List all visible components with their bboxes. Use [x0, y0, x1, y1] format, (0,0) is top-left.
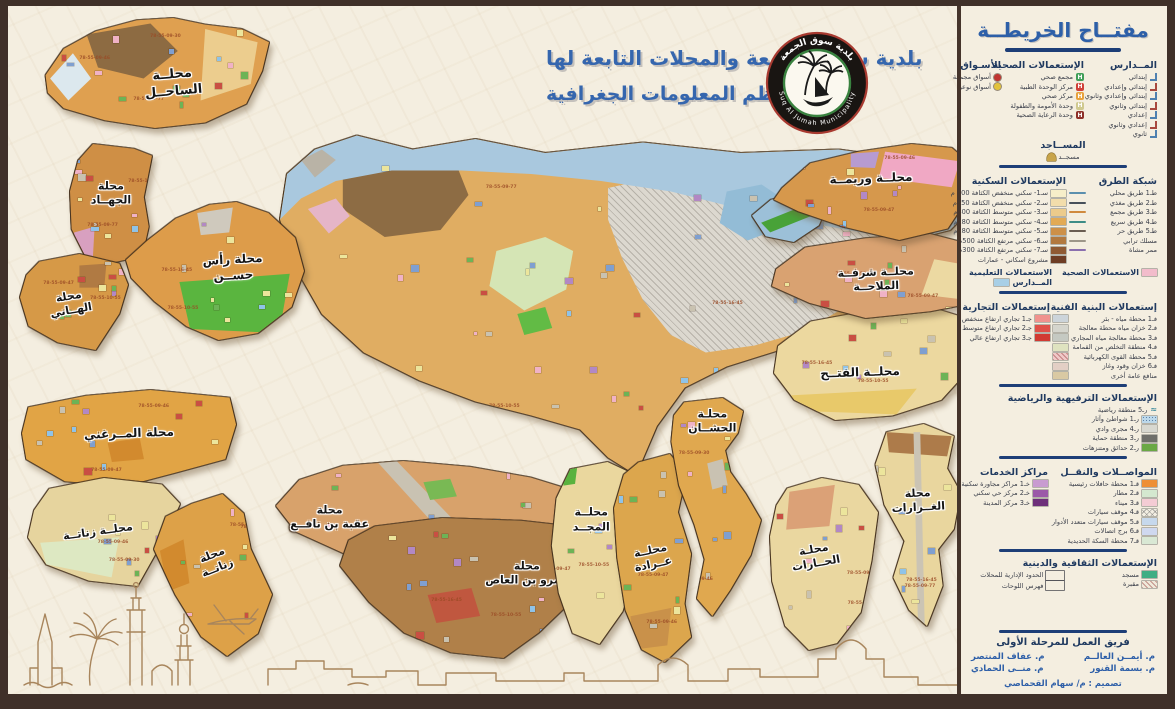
legend-item-label: إعدادي وثانوي	[1108, 121, 1147, 129]
facility-block	[169, 49, 174, 54]
facility-block	[688, 472, 693, 475]
facility-block	[624, 392, 629, 396]
legend-item: Hمجمع صحي	[1004, 73, 1084, 81]
legend-item-label: جـ1 تجاري ارتفاع منخفض	[962, 315, 1032, 323]
facility-block	[630, 497, 637, 502]
legend-item-label: سـ7- سكني مرتفع الكثافة 300م	[958, 246, 1048, 254]
section-title: إستعمالات البنية الفنية	[1053, 302, 1157, 313]
section-title: مراكز الخدمات	[964, 467, 1048, 478]
legend-item: فـ2 خزان مياه محطة معالجة	[1053, 324, 1157, 332]
color-swatch	[1051, 209, 1066, 216]
legend-item-label: طـ2 طريق مغذي	[1110, 199, 1157, 207]
district-shape: 78-55-09-4678-55-09-47	[774, 144, 976, 240]
legend-item-label: قـ4 موقف سيارات	[1088, 508, 1139, 516]
facility-block	[251, 537, 256, 543]
legend-row-schools-health-markets: المــدارس إبتدائيإبتدائي وإعداديإبتدائي …	[969, 58, 1157, 138]
facility-block	[723, 486, 726, 493]
district-label: محلــة المجــد	[573, 506, 610, 535]
facility-block	[840, 226, 844, 230]
legend-item: سـ5- سكني متوسط الكثافة 180م	[966, 227, 1066, 235]
legend-item: Hمركز الوحدة الطبية	[1004, 83, 1084, 91]
health-use-swatch	[1142, 269, 1157, 276]
legend-item: Hمركز صحي	[1004, 92, 1084, 100]
legend-item: إبتدائي وثانوي	[1087, 102, 1157, 110]
legend-item: قـ4 موقف سيارات	[1051, 508, 1157, 516]
color-swatch	[1051, 247, 1066, 254]
facility-block	[454, 559, 461, 566]
legend-item: مسجد	[1067, 571, 1157, 579]
legend-item: طـ4 طريق سريع	[1069, 218, 1157, 226]
legend-divider-bar	[957, 6, 961, 694]
facility-block	[142, 522, 147, 528]
facility-block	[78, 277, 86, 282]
district-label: محلـة الحشــان	[688, 408, 736, 437]
divider	[1005, 48, 1122, 52]
color-swatch	[1142, 518, 1157, 525]
district-al-fath: 78-55-10-5578-55-16-45محلــة الفتــح	[774, 308, 978, 420]
hospital-icon: H	[1076, 92, 1084, 100]
boundary-box-icon	[1046, 571, 1064, 580]
facility-block	[113, 36, 119, 43]
legend-item-label: ثانوي	[1133, 130, 1147, 138]
facility-block	[47, 431, 53, 436]
legend-item-label: سـ3- سكني متوسط الكثافة 300م	[953, 208, 1048, 216]
facility-block	[336, 474, 342, 477]
credits-row: م. أيمــن العالــمم. عفاف المنتصر	[971, 652, 1155, 662]
divider	[999, 384, 1127, 387]
facility-block	[893, 191, 896, 197]
legend-section-schools: المــدارس إبتدائيإبتدائي وإعداديإبتدائي …	[1087, 58, 1157, 138]
facility-block	[169, 320, 175, 323]
facility-block	[898, 186, 901, 189]
credit-name: م. بسمة القنور	[1090, 664, 1155, 674]
facility-block	[211, 298, 214, 302]
legend-item: أسواق مجمعة	[963, 73, 1001, 81]
section-title: إستعمالات التجارية	[966, 302, 1050, 313]
facility-block	[879, 468, 885, 475]
facility-block	[714, 368, 718, 375]
legend-item-health-use: الاستعمالات الصحية	[1062, 268, 1157, 277]
credits-row: م. بسمة القنورم. منــى الحمادي	[971, 664, 1155, 674]
facility-block	[841, 508, 847, 515]
facility-block	[849, 335, 855, 341]
facility-block	[340, 255, 347, 258]
legend-item: ثانوي	[1087, 130, 1157, 138]
legend-row-transport-services: المواصــلات والنقــل قـ1 محطة حافلات رئي…	[969, 465, 1157, 545]
legend-section-infrastructure: إستعمالات البنية الفنية فـ1 محطة مياه - …	[1053, 300, 1157, 380]
land-use-patch	[774, 144, 976, 240]
legend-item: فـ5 محطة القوى الكهربائية	[1053, 353, 1157, 361]
school-icon	[1150, 121, 1157, 129]
legend-item: ممر مشاة	[1069, 246, 1157, 254]
facility-block	[60, 407, 65, 413]
facility-block	[62, 55, 66, 61]
facility-block	[875, 466, 878, 472]
color-swatch	[1033, 499, 1048, 506]
facility-block	[212, 440, 218, 444]
plot-code-label: 78-55-16-45	[162, 268, 193, 273]
facility-block	[946, 307, 953, 312]
facility-block	[552, 405, 559, 409]
color-swatch	[1142, 435, 1157, 442]
poster-title: بلدية سوق الجمعة والمحلات التابعة لها وح…	[546, 46, 784, 105]
hospital-icon: H	[1076, 73, 1084, 81]
municipality-logo: بلدية سوق الجمعة Suq Al Jumah Municipali…	[765, 31, 869, 135]
facility-block	[695, 235, 700, 239]
facility-block	[99, 285, 106, 291]
legend-item: إعدادي	[1087, 111, 1157, 119]
section-title: الإستعمالات الصحية	[1004, 60, 1084, 71]
legend-item: خـ2 مركز حي سكني	[964, 489, 1048, 497]
hospital-icon: H	[1076, 102, 1084, 110]
legend-item-label: سـ5- سكني متوسط الكثافة 180م	[953, 227, 1048, 235]
color-swatch	[1051, 228, 1066, 235]
facility-block	[95, 71, 102, 75]
legend-item: قـ1 محطة حافلات رئيسية	[1051, 480, 1157, 488]
legend-item-label: فـ1 محطة مياه - بئر	[1102, 315, 1157, 323]
district-label: محلة رأس حســن	[196, 251, 269, 286]
plot-code-label: 78-55-16-45	[128, 179, 159, 184]
district-ras-hassan: 78-55-10-5578-55-16-45محلة رأس حســن	[126, 202, 304, 340]
facility-block	[411, 265, 419, 272]
legend-item-label: قـ2 مطار	[1113, 489, 1139, 497]
legend-item-label: جـ2 تجاري ارتفاع متوسط	[962, 324, 1032, 332]
facility-block	[150, 216, 154, 220]
legend-item: Hوحدة الأمومة والطفولة	[1004, 102, 1084, 110]
legend-item: طـ2 طريق مغذي	[1069, 199, 1157, 207]
legend-item-label: فـ4 منطقة التخلص من القمامة	[1073, 343, 1157, 351]
facility-block	[398, 275, 403, 281]
legend-item: خـ1 مراكز مجاورة سكنية	[964, 480, 1048, 488]
legend-section-residential: الإستعمالات السكنية سـ1- سكني منخفض الكث…	[966, 174, 1066, 264]
color-swatch	[1033, 480, 1048, 487]
facility-block	[145, 548, 149, 553]
legend-item-label: قـ3 ميناء	[1115, 499, 1139, 507]
school-icon	[1150, 83, 1157, 91]
facility-block	[180, 102, 183, 108]
school-icon	[1150, 130, 1157, 138]
road-line-swatch	[1069, 211, 1086, 213]
legend-item-label: رـ4 مجرى وادي	[1096, 425, 1139, 433]
facility-block	[467, 258, 473, 262]
legend-item-label: فـ2 خزان مياه محطة معالجة	[1079, 324, 1157, 332]
legend-item-label: إبتدائي وإعدادي وثانوي	[1085, 92, 1147, 100]
facility-block	[285, 293, 292, 297]
facility-block	[607, 545, 612, 549]
color-swatch	[1142, 528, 1157, 535]
facility-block	[442, 534, 448, 538]
plot-code-label: 78-55-10-55	[168, 306, 199, 311]
facility-block	[474, 332, 477, 335]
facility-block	[243, 545, 247, 548]
plot-code-label: 78-55-09-46	[884, 156, 915, 161]
legend-row-roads-residential: شبكة الطرق طـ1 طريق محليطـ2 طريق مغذيطـ3…	[969, 174, 1157, 264]
mosque-label: مسجــد	[1059, 153, 1080, 161]
facility-block	[681, 424, 686, 427]
legend-item-label: طـ4 طريق سريع	[1111, 218, 1157, 226]
facility-block	[567, 311, 571, 317]
legend-item-label: قـ5 موقف سيارات متعدد الأدوار	[1052, 518, 1139, 526]
district-label: محلــة شرفــة الملاحــة	[824, 264, 929, 296]
legend-item-label: قـ7 محطة السكة الحديدية	[1068, 537, 1139, 545]
district-label: محلــة الفتــح	[820, 364, 900, 382]
facility-block	[612, 396, 616, 402]
color-swatch	[1035, 334, 1050, 341]
legend-item-label: وحدة الرعاية الصحية	[1016, 111, 1073, 119]
legend-item-label: مشروع اسكاني - عمارات	[978, 256, 1048, 264]
boundary-box-icon	[1046, 581, 1064, 590]
legend-item: فهرس اللوحات	[969, 581, 1064, 590]
poster-title-line2: وحدة نظم المعلومات الجغرافية	[546, 83, 784, 105]
color-swatch	[1053, 353, 1068, 360]
district-label: محلة الغــرارات	[889, 485, 946, 516]
district-al-marghani: 78-55-09-4678-55-09-47محلة المــرغني	[22, 390, 236, 486]
district-shurfat-al-malaha: 78-55-09-4778-55-10-55محلــة شرفــة المل…	[772, 234, 980, 318]
divider	[999, 549, 1127, 552]
legend-section-health-facilities: الإستعمالات الصحية Hمجمع صحيHمركز الوحدة…	[1004, 58, 1084, 138]
facility-block	[72, 400, 80, 403]
facility-block	[884, 352, 891, 356]
legend-item-label: الحدود الإدارية للمحلات	[980, 571, 1043, 579]
legend-item: مقبرة	[1067, 580, 1157, 588]
education-use-sublabel: المــدارس	[1012, 278, 1052, 287]
legend-item-label: إبتدائي وإعدادي	[1104, 83, 1147, 91]
facility-block	[777, 514, 784, 520]
section-title: شبكة الطرق	[1069, 176, 1157, 187]
legend-item-label: ممر مشاة	[1129, 246, 1157, 254]
legend-item-mosque: مسجــد	[969, 153, 1157, 161]
legend-item-label: فـ3 محطة معالجة مياه المجاري	[1071, 334, 1157, 342]
legend-item: ≈رـ5 منطقة رياضية	[1098, 406, 1157, 414]
plot-code-label: 78-55-10-55	[489, 404, 520, 409]
school-icon	[1150, 92, 1157, 100]
legend-item-label: مسلك ترابي	[1123, 237, 1157, 245]
color-swatch	[1051, 237, 1066, 244]
facility-block	[225, 318, 230, 322]
facility-block	[598, 207, 601, 211]
divider	[999, 165, 1127, 168]
legend-section-markets: الأسـواق أسواق مجمعةأسواق نوعية	[963, 58, 1001, 138]
legend-item: إعدادي وثانوي	[1087, 121, 1157, 129]
facility-block	[237, 30, 243, 36]
facility-block	[713, 538, 718, 541]
facility-block	[526, 269, 530, 275]
facility-block	[231, 509, 235, 515]
legend-item: رـ3 منطقة حماية	[1092, 434, 1157, 442]
facility-block	[928, 336, 935, 342]
facility-block	[725, 437, 730, 440]
legend-item-label: مجمع صحي	[1040, 73, 1073, 81]
facility-block	[606, 265, 614, 271]
credit-name: م. أيمــن العالــم	[1084, 652, 1155, 662]
road-line-swatch	[1069, 249, 1086, 251]
legend-item: إبتدائي وإعدادي وثانوي	[1087, 92, 1157, 100]
legend-item: قـ5 موقف سيارات متعدد الأدوار	[1051, 518, 1157, 526]
facility-block	[67, 63, 74, 66]
legend-item-label: إبتدائي وثانوي	[1109, 102, 1147, 110]
plot-code-label: 78-55-09-46	[138, 404, 169, 409]
legend-item-label: رـ1 شواطئ وآثار	[1092, 415, 1139, 423]
facility-block	[694, 195, 701, 201]
section-title: المــدارس	[1087, 60, 1157, 71]
hospital-icon: H	[1076, 111, 1084, 119]
legend-panel: مفتــاح الخريطــة المــدارس إبتدائيإبتدا…	[961, 6, 1167, 694]
facility-block	[536, 534, 542, 540]
legend-item-label: خـ2 مركز حي سكني	[973, 489, 1030, 497]
facility-block	[535, 367, 542, 374]
legend-section-commercial: إستعمالات التجارية جـ1 تجاري ارتفاع منخف…	[966, 300, 1050, 380]
color-swatch	[1142, 490, 1157, 497]
skyline-art	[18, 572, 966, 692]
plot-code-label: 78-55-09-47	[864, 208, 895, 213]
facility-block	[902, 246, 906, 253]
section-title: المســاجد	[969, 140, 1157, 151]
legend-item-label: منافع عامة أخرى	[1111, 372, 1157, 380]
market-dot-icon	[994, 83, 1001, 90]
legend-section-cultural: الإستعمالات الثقافية والدينية مسجدمقبرة …	[969, 556, 1157, 591]
legend-item: مشروع اسكاني - عمارات	[966, 256, 1066, 264]
legend-item-label: طـ1 طريق محلي	[1110, 189, 1157, 197]
color-swatch	[1142, 537, 1157, 544]
legend-item: الحدود الإدارية للمحلات	[969, 571, 1064, 580]
facility-block	[871, 323, 876, 329]
legend-item-label: إعدادي	[1128, 111, 1147, 119]
color-swatch	[1053, 344, 1068, 351]
facility-block	[848, 261, 854, 265]
legend-item-label: فهرس اللوحات	[1002, 582, 1044, 590]
legend-item: جـ2 تجاري ارتفاع متوسط	[966, 324, 1050, 332]
facility-block	[619, 496, 623, 502]
facility-block	[37, 441, 42, 445]
legend-item-label: فـ6 خزان وقود وغاز	[1103, 362, 1157, 370]
credits-design: تصميم : م/ سهام القحماصي	[969, 678, 1157, 688]
facility-block	[76, 160, 80, 163]
legend-item: فـ3 محطة معالجة مياه المجاري	[1053, 334, 1157, 342]
color-swatch	[1053, 325, 1068, 332]
legend-item: أسواق نوعية	[963, 83, 1001, 91]
color-swatch	[1053, 334, 1068, 341]
facility-block	[941, 373, 948, 380]
facility-block	[836, 525, 842, 532]
color-swatch	[1142, 499, 1157, 506]
facility-block	[507, 473, 510, 478]
legend-title: مفتــاح الخريطــة	[969, 18, 1157, 42]
facility-block	[434, 532, 438, 537]
legend-item-label: سـ4- سكني متوسط الكثافة 180م	[953, 218, 1048, 226]
plot-code-label: 78-55-09-30	[230, 523, 261, 528]
facility-block	[389, 536, 396, 541]
legend-item: قـ2 مطار	[1051, 489, 1157, 497]
legend-item: قـ6 برج اتصالات	[1051, 527, 1157, 535]
facility-block	[78, 174, 86, 181]
facility-block	[681, 378, 688, 384]
facility-block	[568, 549, 574, 553]
facility-block	[570, 435, 576, 441]
sport-area-icon: ≈	[1150, 406, 1157, 413]
legend-item: قـ7 محطة السكة الحديدية	[1051, 537, 1157, 545]
facility-block	[861, 192, 867, 199]
legend-item: سـ2- سكني منخفض الكثافة 450م	[966, 199, 1066, 207]
legend-item-label: رـ5 منطقة رياضية	[1098, 406, 1147, 414]
credits: فريق العمل للمرحلة الأولى م. أيمــن العا…	[969, 626, 1157, 688]
market-dot-icon	[994, 74, 1001, 81]
facility-block	[530, 263, 535, 268]
facility-block	[928, 548, 935, 554]
facility-block	[217, 57, 221, 61]
legend-item-label: إبتدائي	[1129, 73, 1147, 81]
legend-item-education-use: الاستعمالات التعليمية المــدارس	[969, 268, 1052, 287]
road-line-swatch	[1069, 230, 1086, 232]
legend-section-roads: شبكة الطرق طـ1 طريق محليطـ2 طريق مغذيطـ3…	[1069, 174, 1157, 264]
color-swatch	[1142, 425, 1157, 432]
credit-name: م. عفاف المنتصر	[971, 652, 1045, 662]
school-icon	[1150, 73, 1157, 81]
plot-code-label: 78-55-09-30	[150, 34, 181, 39]
health-use-label: الاستعمالات الصحية	[1062, 268, 1139, 277]
legend-item: سـ7- سكني مرتفع الكثافة 300م	[966, 246, 1066, 254]
color-swatch	[1053, 315, 1068, 322]
education-use-swatch	[994, 279, 1009, 286]
color-swatch	[1142, 571, 1157, 578]
legend-item: فـ4 منطقة التخلص من القمامة	[1053, 343, 1157, 351]
color-swatch	[1035, 325, 1050, 332]
facility-block	[601, 273, 607, 278]
section-title: الإستعمالات الترفيهية والرياضية	[969, 393, 1157, 404]
divider	[999, 630, 1127, 633]
facility-block	[181, 561, 185, 565]
facility-block	[546, 429, 553, 432]
facility-block	[639, 406, 643, 410]
facility-block	[78, 198, 81, 201]
legend-item-label: سـ1- سكني منخفض الكثافة 500 م	[951, 189, 1048, 197]
credits-title: فريق العمل للمرحلة الأولى	[969, 637, 1157, 648]
facility-block	[808, 204, 814, 207]
legend-item: Hوحدة الرعاية الصحية	[1004, 111, 1084, 119]
legend-item: رـ1 شواطئ وآثار	[1092, 415, 1157, 423]
facility-block	[634, 313, 640, 317]
facility-block	[382, 166, 389, 170]
legend-item-label: أسواق نوعية	[956, 83, 991, 91]
facility-block	[196, 401, 202, 405]
legend-item-label: وحدة الأمومة والطفولة	[1010, 102, 1073, 110]
legend-item: قـ3 ميناء	[1051, 499, 1157, 507]
color-swatch	[1051, 218, 1066, 225]
facility-block	[176, 414, 182, 419]
legend-item: سـ3- سكني متوسط الكثافة 300م	[966, 208, 1066, 216]
color-swatch	[1053, 363, 1068, 370]
color-swatch	[1142, 509, 1157, 516]
plot-code-label: 78-55-09-30	[109, 558, 140, 563]
plot-code-label: 78-55-09-77	[486, 185, 517, 190]
plot-code-label: 78-55-09-46	[98, 540, 129, 545]
road-line-swatch	[1069, 221, 1086, 223]
legend-row-uses: الاستعمالات الصحية الاستعمالات التعليمية…	[969, 268, 1157, 287]
legend-item: سـ1- سكني منخفض الكثافة 500 م	[966, 189, 1066, 197]
facility-block	[870, 494, 873, 497]
legend-item-label: سـ2- سكني منخفض الكثافة 450م	[953, 199, 1048, 207]
facility-block	[406, 394, 413, 399]
color-swatch	[1142, 581, 1157, 588]
color-swatch	[1142, 416, 1157, 423]
legend-item-label: طـ5 طريق حر	[1117, 227, 1157, 235]
plot-code-label: 78-55-09-47	[43, 281, 74, 286]
district-label: محلــة وريمــة	[829, 169, 913, 187]
road-line-swatch	[1069, 240, 1086, 242]
legend-section-transport: المواصــلات والنقــل قـ1 محطة حافلات رئي…	[1051, 465, 1157, 545]
legend-item: سـ4- سكني متوسط الكثافة 180م	[966, 218, 1066, 226]
mosque-icon	[1047, 153, 1056, 161]
color-swatch	[1051, 199, 1066, 206]
